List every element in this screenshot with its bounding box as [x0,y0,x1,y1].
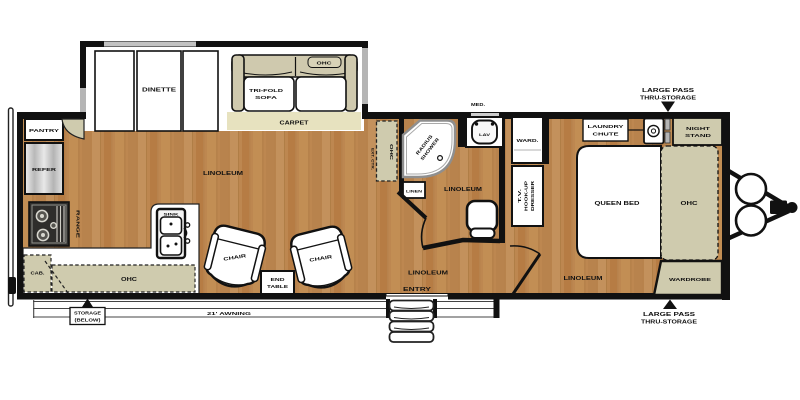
svg-text:OHC: OHC [121,277,138,283]
svg-text:OHC: OHC [681,201,699,207]
svg-text:THRU-STORAGE: THRU-STORAGE [640,96,696,102]
svg-text:TRI-FOLD: TRI-FOLD [249,88,284,94]
svg-text:EXT. CTR.: EXT. CTR. [371,148,375,170]
svg-text:DINETTE: DINETTE [142,88,177,94]
svg-text:PANTRY: PANTRY [29,128,59,133]
svg-text:ENTRY: ENTRY [403,287,432,293]
svg-text:LINOLEUM: LINOLEUM [564,276,603,282]
svg-text:REFER: REFER [32,167,57,172]
svg-text:DRESSER: DRESSER [530,181,535,211]
svg-text:21' AWNING: 21' AWNING [207,311,252,316]
svg-text:MED.: MED. [471,102,485,107]
svg-text:SOFA: SOFA [255,95,278,101]
svg-text:LINOLEUM: LINOLEUM [203,171,243,177]
svg-text:OHC: OHC [317,61,333,66]
svg-text:QUEEN BED: QUEEN BED [595,201,640,207]
svg-text:NIGHT: NIGHT [686,126,711,131]
svg-text:LARGE PASS: LARGE PASS [642,88,694,94]
svg-text:LARGE PASS: LARGE PASS [643,312,695,318]
svg-text:LINEN: LINEN [406,189,422,194]
svg-text:LINOLEUM: LINOLEUM [408,271,448,277]
svg-text:LINOLEUM: LINOLEUM [444,187,482,193]
svg-text:(BELOW): (BELOW) [75,318,102,323]
svg-text:RANGE: RANGE [76,210,81,238]
svg-text:CAB.: CAB. [31,271,45,276]
svg-text:END: END [271,277,285,282]
svg-text:LAV: LAV [479,132,490,137]
svg-text:STAND: STAND [685,133,711,138]
svg-text:THRU-STORAGE: THRU-STORAGE [641,320,697,326]
svg-text:STORAGE: STORAGE [74,311,101,316]
svg-text:WARDROBE: WARDROBE [669,277,711,282]
svg-text:CHUTE: CHUTE [593,132,619,137]
svg-text:LAUNDRY: LAUNDRY [588,124,624,129]
svg-text:TABLE: TABLE [267,284,288,289]
svg-text:SINK: SINK [164,212,179,217]
svg-text:WARD.: WARD. [517,138,539,143]
svg-text:CARPET: CARPET [280,121,309,127]
svg-text:OHC: OHC [389,144,394,161]
svg-text:T.V.: T.V. [517,189,522,203]
svg-text:HOOK-UP: HOOK-UP [524,181,529,211]
